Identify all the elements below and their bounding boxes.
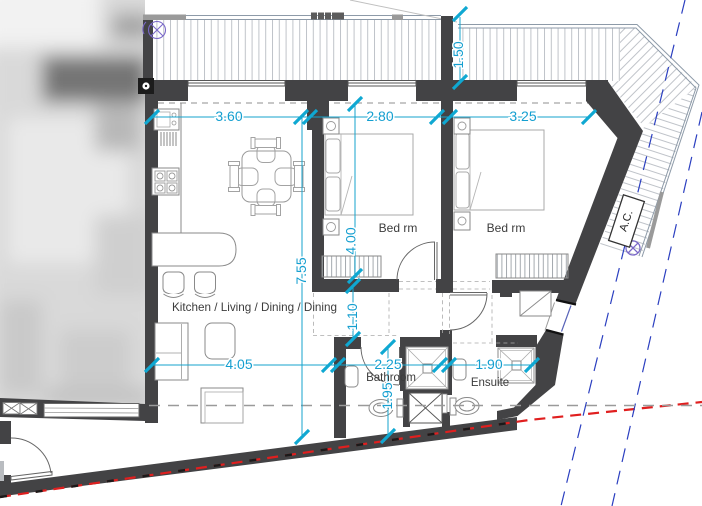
- svg-text:1.50: 1.50: [450, 41, 466, 68]
- svg-text:Bed rm: Bed rm: [487, 221, 526, 235]
- svg-text:1.95: 1.95: [379, 382, 395, 409]
- svg-text:7.55: 7.55: [293, 257, 309, 284]
- svg-text:Bathroom: Bathroom: [366, 372, 416, 384]
- svg-text:2.80: 2.80: [366, 108, 393, 124]
- svg-text:Kitchen / Living / Dining / Di: Kitchen / Living / Dining / Dining: [172, 301, 337, 314]
- svg-text:Ensuite: Ensuite: [471, 377, 509, 389]
- svg-text:1.10: 1.10: [344, 303, 360, 330]
- svg-text:Bed rm: Bed rm: [379, 221, 418, 235]
- svg-text:2.25: 2.25: [374, 356, 401, 372]
- svg-text:3.60: 3.60: [215, 108, 242, 124]
- svg-text:1.90: 1.90: [475, 356, 502, 372]
- svg-text:4.05: 4.05: [225, 356, 252, 372]
- svg-text:4.00: 4.00: [343, 227, 359, 254]
- svg-text:3.25: 3.25: [509, 108, 536, 124]
